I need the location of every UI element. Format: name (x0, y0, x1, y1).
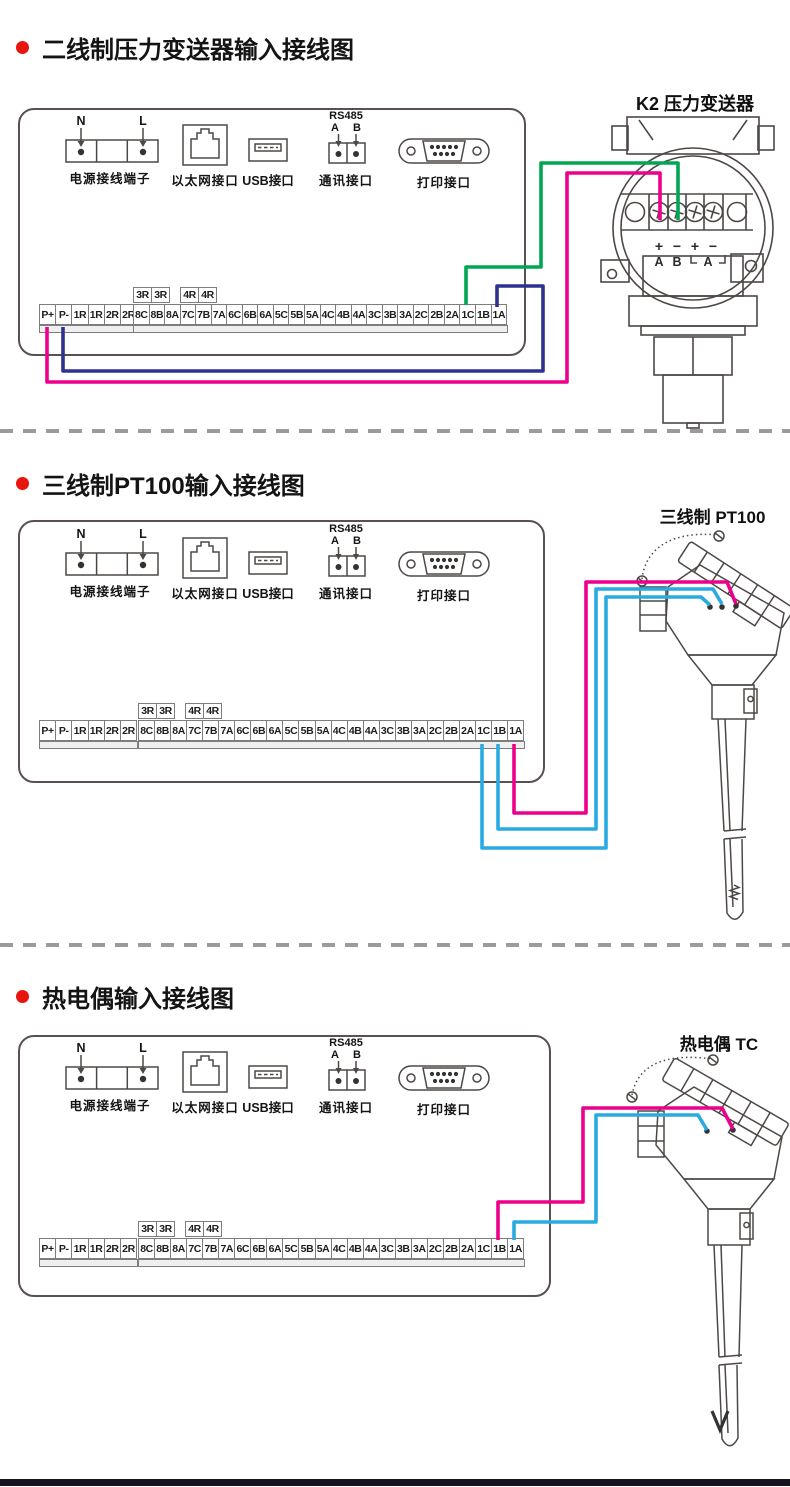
comm-port-icon (328, 547, 366, 577)
terminal-cell: 1C (475, 720, 492, 741)
relay-terminal-row: 3R3R4R4R (138, 703, 222, 719)
comm-port-icon (328, 1061, 366, 1091)
terminal-cell: P- (55, 304, 72, 325)
printer-port-label: 打印接口 (396, 1099, 492, 1118)
terminal-cell: 4R (185, 1221, 204, 1237)
printer-port-icon (398, 547, 490, 581)
terminal-cell: 2R (104, 1238, 121, 1259)
rs485-ab-labels: A B (314, 1049, 378, 1061)
terminal-cell: 5B (298, 1238, 315, 1259)
terminal-cell: 8B (154, 720, 171, 741)
terminal-cell: 7C (186, 720, 203, 741)
terminal-rail (39, 1259, 138, 1267)
terminal-cell: 3B (395, 1238, 412, 1259)
terminal-cell: 2C (427, 720, 444, 741)
terminal-cell: 2R (120, 1238, 137, 1259)
terminal-cell: 3C (379, 1238, 396, 1259)
terminal-cell: 5C (273, 304, 290, 325)
usb-port-icon (248, 551, 288, 575)
terminal-cell: 8C (133, 304, 150, 325)
terminal-cell: 5A (315, 1238, 332, 1259)
terminal-cell: 2B (428, 304, 445, 325)
ethernet-port-icon (182, 1051, 228, 1093)
terminal-cell: 7A (211, 304, 228, 325)
terminal-cell: 6C (234, 1238, 251, 1259)
terminal-cell: 4B (347, 720, 364, 741)
power-port-label: 电源接线端子 (53, 168, 167, 187)
channel-b-label: B (672, 255, 681, 269)
terminal-cell: 7A (218, 1238, 235, 1259)
thermocouple-sensor-drawing (598, 1053, 790, 1459)
bullet-icon (16, 477, 29, 490)
terminal-cell: 4R (203, 1221, 222, 1237)
power-terminal-n-label: N (74, 527, 88, 541)
terminal-cell: 3A (397, 304, 414, 325)
relay-terminal-row: 3R3R4R4R (138, 1221, 222, 1237)
terminal-cell: 6A (257, 304, 274, 325)
terminal-rail (39, 325, 138, 333)
rs485-a-label: A (331, 122, 339, 134)
power-terminal-n-label: N (74, 1041, 88, 1055)
terminal-cell: 3C (379, 720, 396, 741)
rs485-label: RS485 (314, 523, 378, 535)
section-3-title: 热电偶输入接线图 (16, 979, 234, 1014)
terminal-cell: 7C (186, 1238, 203, 1259)
terminal-cell: 6B (250, 1238, 267, 1259)
terminal-cell: 5B (288, 304, 305, 325)
comm-port-label: 通讯接口 (306, 170, 386, 189)
rs485-b-label: B (353, 535, 361, 547)
terminal-cell: 4B (335, 304, 352, 325)
power-terminal-n-label: N (74, 114, 88, 128)
power-terminal-icon (64, 128, 160, 164)
terminal-cell: 4C (331, 720, 348, 741)
terminal-cell: 5B (298, 720, 315, 741)
terminal-cell: 1C (459, 304, 476, 325)
terminal-cell: 5A (304, 304, 321, 325)
terminal-cell: P+ (39, 720, 56, 741)
section-divider (0, 943, 790, 947)
section-title-text: 三线制PT100输入接线图 (42, 466, 305, 501)
power-terminal-l-label: L (136, 527, 150, 541)
usb-port-label: USB接口 (234, 170, 302, 189)
section-2-title: 三线制PT100输入接线图 (16, 466, 305, 501)
rs485-ab-labels: A B (314, 535, 378, 547)
terminal-cell: 3C (366, 304, 383, 325)
terminal-cell: 6B (242, 304, 259, 325)
terminal-cell: 4C (320, 304, 337, 325)
terminal-cell: 8A (164, 304, 181, 325)
power-input-terminal-block: P+P-1R1R2R2R (39, 720, 137, 741)
rs485-a-label: A (331, 1049, 339, 1061)
terminal-cell: 6A (266, 1238, 283, 1259)
terminal-cell: 8A (170, 1238, 187, 1259)
comm-port-label: 通讯接口 (306, 1097, 386, 1116)
terminal-cell: 1R (88, 304, 105, 325)
terminal-cell: 4R (180, 287, 199, 303)
usb-port-icon (248, 138, 288, 162)
terminal-cell: 4A (363, 720, 380, 741)
terminal-cell: 4R (185, 703, 204, 719)
terminal-cell: 4A (351, 304, 368, 325)
thermocouple-sensor-label: 热电偶 TC (648, 1030, 790, 1055)
printer-port-icon (398, 134, 490, 168)
polarity-plus-1: + (655, 238, 663, 254)
signal-terminal-block: 8C8B8A7C7B7A6C6B6A5C5B5A4C4B4A3C3B3A2C2B… (138, 1238, 524, 1259)
page-footer-bar (0, 1479, 790, 1486)
ethernet-port-icon (182, 124, 228, 166)
rs485-label: RS485 (314, 110, 378, 122)
terminal-cell: P+ (39, 1238, 56, 1259)
terminal-cell: 1B (491, 1238, 508, 1259)
power-input-terminal-block: P+P-1R1R2R2R (39, 1238, 137, 1259)
terminal-cell: 7B (202, 720, 219, 741)
terminal-cell: 6A (266, 720, 283, 741)
power-terminal-icon (64, 541, 160, 577)
terminal-cell: 2B (443, 1238, 460, 1259)
terminal-cell: 4C (331, 1238, 348, 1259)
power-port-label: 电源接线端子 (53, 581, 167, 600)
bullet-icon (16, 990, 29, 1003)
terminal-cell: 8A (170, 720, 187, 741)
usb-port-label: USB接口 (234, 583, 302, 602)
terminal-cell: 5C (282, 1238, 299, 1259)
power-terminal-icon (64, 1055, 160, 1091)
terminal-cell: 6C (234, 720, 251, 741)
terminal-cell: 3R (151, 287, 170, 303)
bullet-icon (16, 41, 29, 54)
terminal-cell: P- (55, 1238, 72, 1259)
terminal-cell: 1R (71, 304, 88, 325)
section-title-text: 热电偶输入接线图 (42, 979, 234, 1014)
terminal-cell: 3R (156, 1221, 175, 1237)
channel-a2-label: A (703, 255, 712, 269)
power-port-label: 电源接线端子 (53, 1095, 167, 1114)
terminal-cell: 4R (198, 287, 217, 303)
terminal-cell: 1A (491, 304, 508, 325)
channel-a-label: A (654, 255, 663, 269)
relay-terminal-row: 3R3R4R4R (133, 287, 217, 303)
terminal-cell: 1R (71, 720, 88, 741)
terminal-cell: 4A (363, 1238, 380, 1259)
rs485-b-label: B (353, 1049, 361, 1061)
power-input-terminal-block: P+P-1R1R2R2R (39, 304, 137, 325)
terminal-cell: 2A (459, 1238, 476, 1259)
rs485-label: RS485 (314, 1037, 378, 1049)
rs485-b-label: B (353, 122, 361, 134)
printer-port-icon (398, 1061, 490, 1095)
terminal-cell: 1C (475, 1238, 492, 1259)
terminal-rail (138, 741, 525, 749)
terminal-cell: 2R (120, 720, 137, 741)
terminal-cell: 7A (218, 720, 235, 741)
wiring-manual-page: { "sections": [ { "title": "二线制压力变送器输入接线… (0, 0, 790, 1487)
terminal-cell: 1B (491, 720, 508, 741)
terminal-cell: 7B (202, 1238, 219, 1259)
section-divider (0, 429, 790, 433)
terminal-cell: 3B (382, 304, 399, 325)
terminal-cell: 6B (250, 720, 267, 741)
terminal-cell: 2A (459, 720, 476, 741)
terminal-cell: 1B (475, 304, 492, 325)
pressure-transmitter-drawing: + − + − A B A (555, 106, 790, 428)
terminal-cell: 3A (411, 720, 428, 741)
section-1-title: 二线制压力变送器输入接线图 (16, 30, 354, 65)
terminal-cell: 2C (413, 304, 430, 325)
terminal-rail (133, 325, 508, 333)
terminal-cell: 2C (427, 1238, 444, 1259)
terminal-cell: 5A (315, 720, 332, 741)
terminal-cell: 3R (138, 1221, 157, 1237)
rs485-a-label: A (331, 535, 339, 547)
power-terminal-l-label: L (136, 114, 150, 128)
polarity-minus-2: − (709, 238, 717, 254)
comm-port-icon (328, 134, 366, 164)
terminal-cell: 1R (88, 720, 105, 741)
usb-port-label: USB接口 (234, 1097, 302, 1116)
terminal-cell: 1R (71, 1238, 88, 1259)
terminal-cell: P- (55, 720, 72, 741)
power-terminal-l-label: L (136, 1041, 150, 1055)
terminal-cell: 2R (104, 304, 121, 325)
terminal-cell: 8B (154, 1238, 171, 1259)
terminal-cell: 6C (226, 304, 243, 325)
printer-port-label: 打印接口 (396, 585, 492, 604)
terminal-cell: 3R (138, 703, 157, 719)
section-title-text: 二线制压力变送器输入接线图 (42, 30, 354, 65)
terminal-cell: 2A (444, 304, 461, 325)
terminal-cell: 5C (282, 720, 299, 741)
terminal-cell: 3R (133, 287, 152, 303)
signal-terminal-block: 8C8B8A7C7B7A6C6B6A5C5B5A4C4B4A3C3B3A2C2B… (133, 304, 507, 325)
terminal-cell: 7C (180, 304, 197, 325)
terminal-cell: 7B (195, 304, 212, 325)
polarity-plus-2: + (691, 238, 699, 254)
terminal-cell: 1R (88, 1238, 105, 1259)
terminal-cell: 1A (507, 720, 524, 741)
terminal-cell: 4R (203, 703, 222, 719)
printer-port-label: 打印接口 (396, 172, 492, 191)
terminal-cell: 1A (507, 1238, 524, 1259)
terminal-cell: 8C (138, 1238, 155, 1259)
pt100-sensor-drawing (598, 523, 790, 935)
terminal-cell: 2R (104, 720, 121, 741)
terminal-cell: 8B (149, 304, 166, 325)
terminal-rail (138, 1259, 525, 1267)
rs485-ab-labels: A B (314, 122, 378, 134)
signal-terminal-block: 8C8B8A7C7B7A6C6B6A5C5B5A4C4B4A3C3B3A2C2B… (138, 720, 524, 741)
usb-port-icon (248, 1065, 288, 1089)
polarity-minus-1: − (673, 238, 681, 254)
ethernet-port-icon (182, 537, 228, 579)
terminal-cell: 3B (395, 720, 412, 741)
terminal-cell: 3A (411, 1238, 428, 1259)
terminal-cell: 4B (347, 1238, 364, 1259)
terminal-cell: 3R (156, 703, 175, 719)
comm-port-label: 通讯接口 (306, 583, 386, 602)
terminal-cell: 2B (443, 720, 460, 741)
terminal-cell: P+ (39, 304, 56, 325)
terminal-cell: 8C (138, 720, 155, 741)
terminal-rail (39, 741, 138, 749)
